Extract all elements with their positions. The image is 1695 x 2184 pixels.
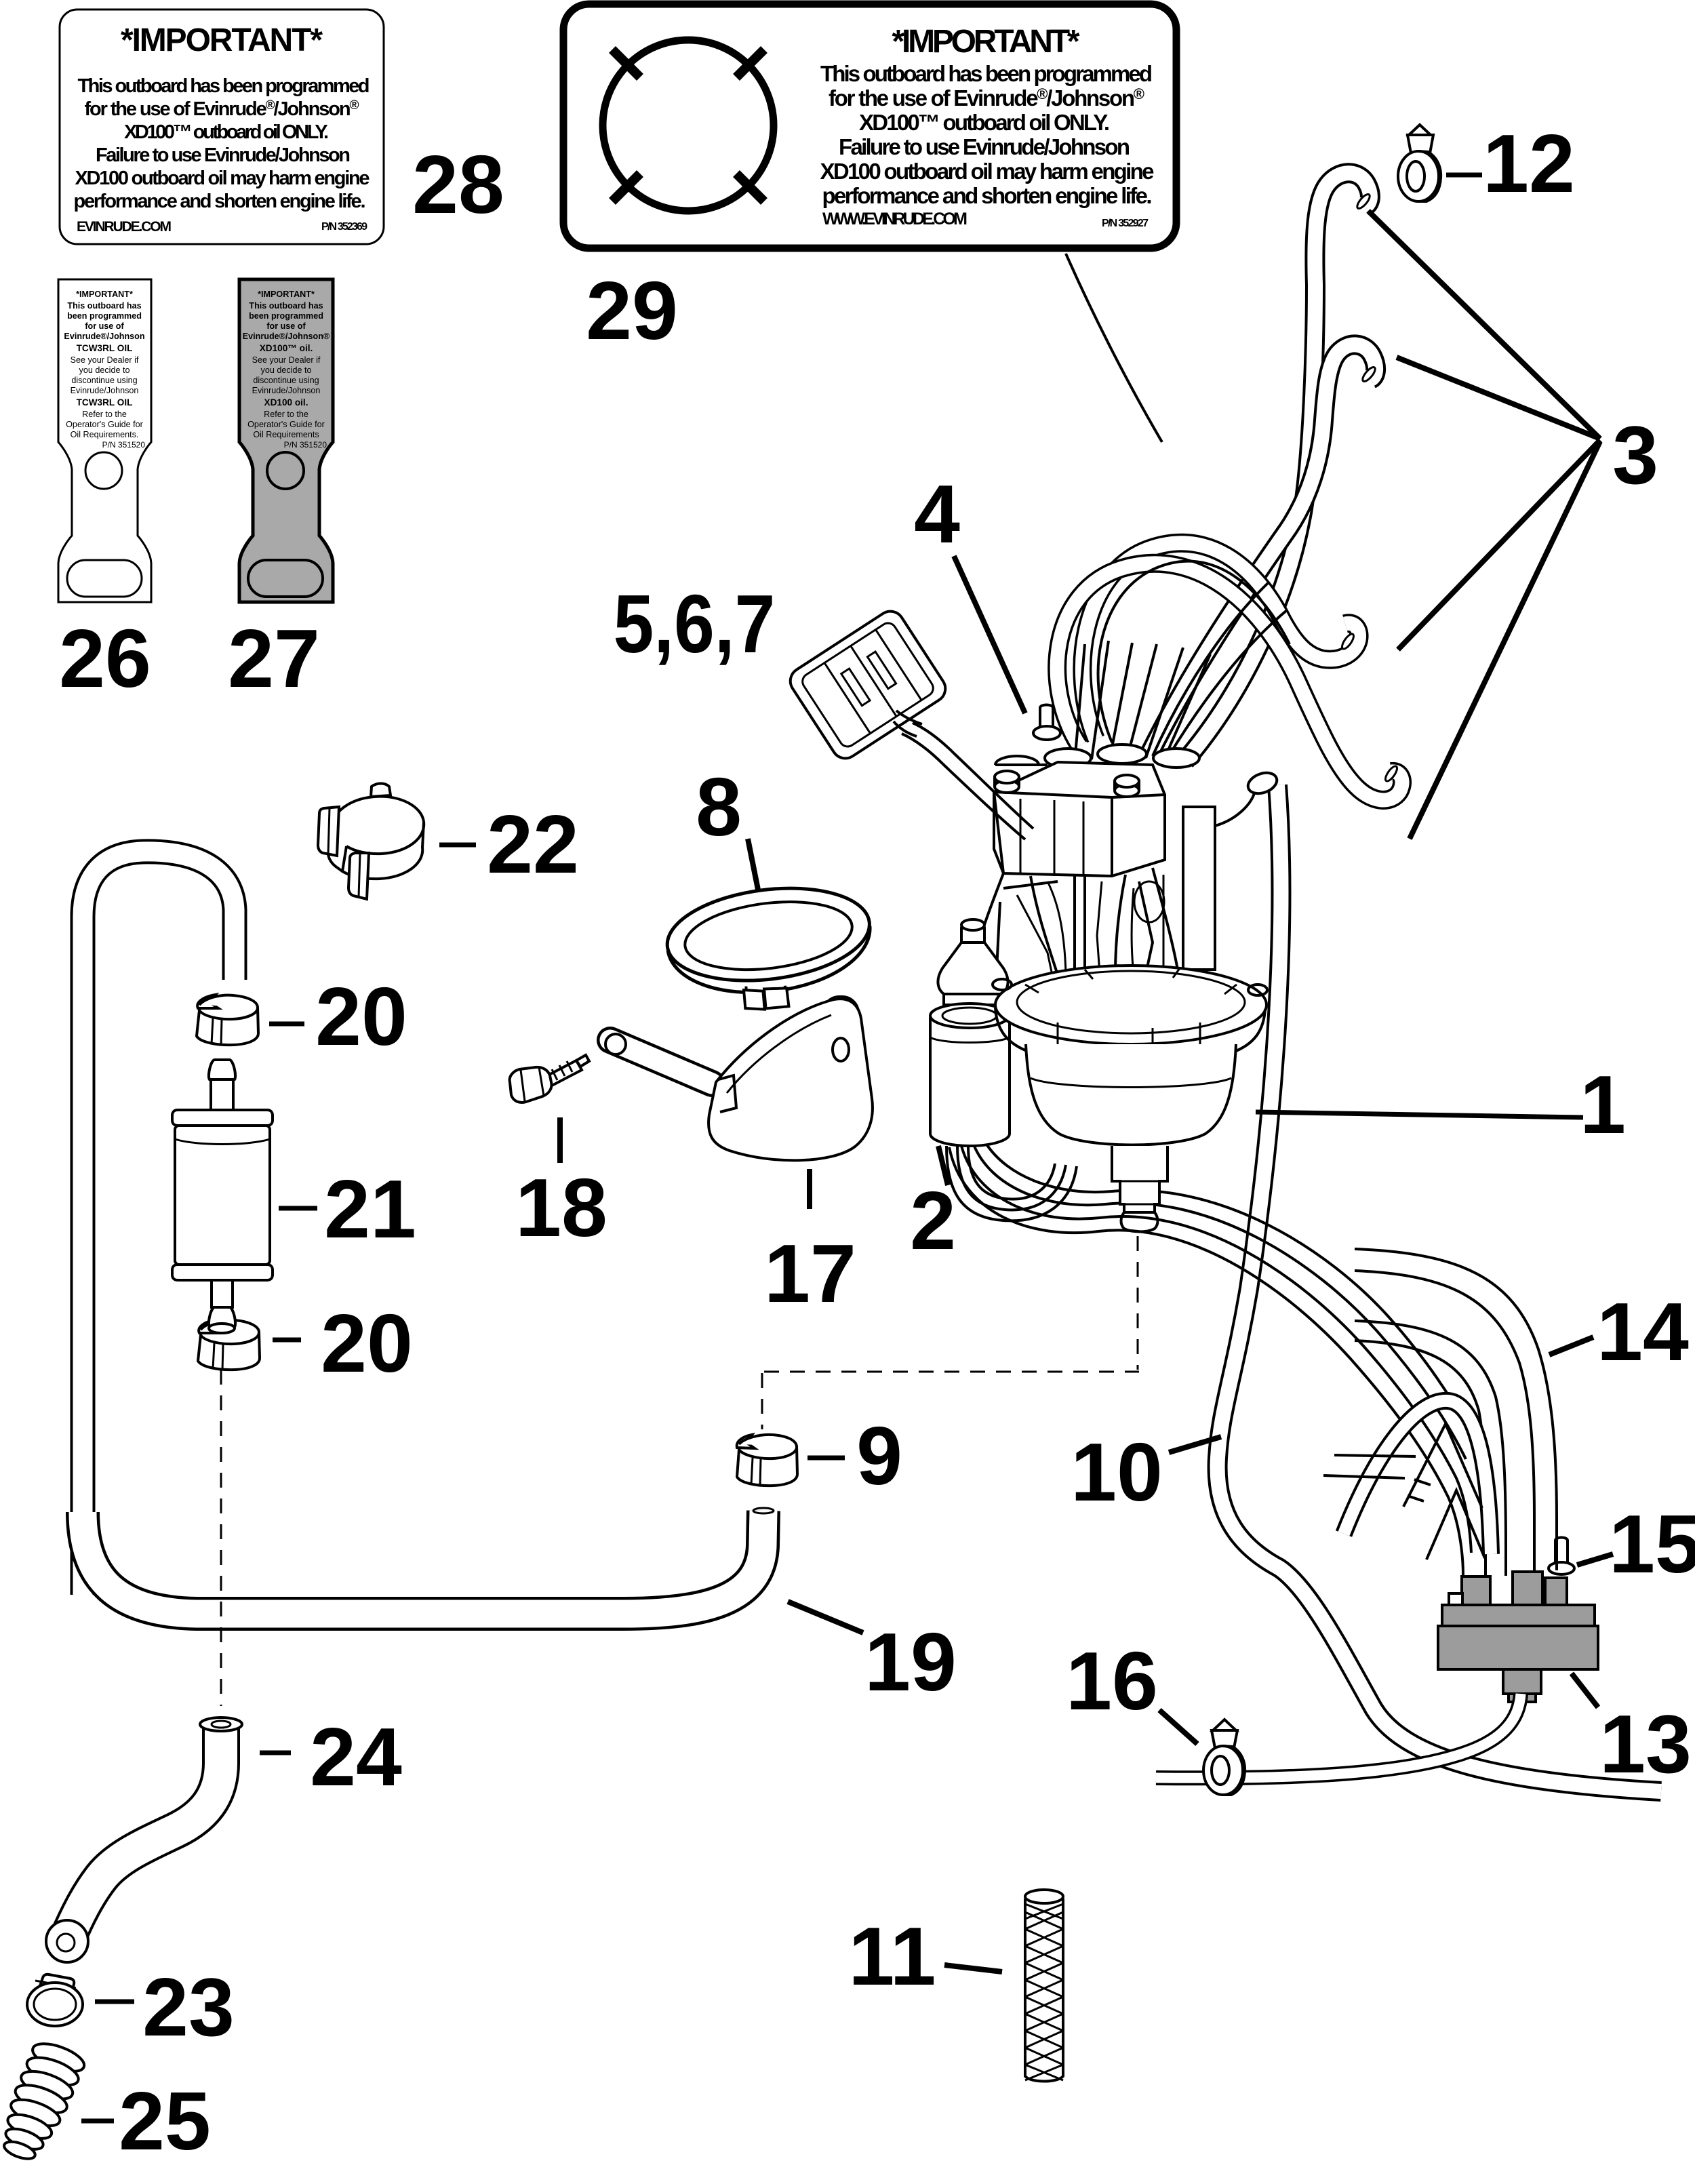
svg-text:P/N 352369: P/N 352369 [321, 221, 367, 233]
svg-text:20: 20 [315, 970, 407, 1063]
svg-text:you decide to: you decide to [79, 365, 130, 375]
svg-text:Refer to the: Refer to the [264, 410, 308, 419]
svg-text:Refer to the: Refer to the [82, 410, 127, 419]
svg-text:WWW.EVINRUDE.COM: WWW.EVINRUDE.COM [822, 210, 968, 229]
svg-text:29: 29 [586, 264, 678, 357]
svg-text:This outboard has: This outboard has [67, 301, 141, 311]
svg-text:5,6,7: 5,6,7 [614, 578, 776, 671]
svg-text:XD100™ oil.: XD100™ oil. [260, 343, 313, 353]
svg-text:14: 14 [1597, 1286, 1689, 1378]
svg-text:This outboard has been program: This outboard has been programmed [820, 61, 1153, 86]
svg-text:XD100 outboard oil may harm en: XD100 outboard oil may harm engine [820, 159, 1155, 184]
svg-text:26: 26 [59, 612, 151, 704]
svg-text:This outboard has been program: This outboard has been programmed [78, 75, 370, 97]
svg-text:24: 24 [310, 1711, 402, 1803]
svg-text:performance and shorten engine: performance and shorten engine life. [74, 191, 366, 212]
svg-text:*IMPORTANT*: *IMPORTANT* [258, 290, 315, 299]
svg-text:8: 8 [696, 761, 742, 853]
svg-text:been programmed: been programmed [67, 311, 142, 321]
svg-text:for use of: for use of [85, 321, 124, 331]
svg-text:Operator's Guide for: Operator's Guide for [247, 420, 325, 429]
svg-text:TCW3RL OIL: TCW3RL OIL [77, 397, 133, 408]
svg-text:18: 18 [515, 1162, 607, 1254]
svg-text:XD100™ outboard oil ONLY.: XD100™ outboard oil ONLY. [859, 110, 1110, 135]
svg-text:16: 16 [1066, 1635, 1158, 1727]
svg-text:28: 28 [412, 138, 504, 231]
svg-text:XD100™ outboard oil ONLY.: XD100™ outboard oil ONLY. [124, 121, 329, 143]
svg-text:XD100 outboard oil may harm en: XD100 outboard oil may harm engine [75, 167, 370, 189]
svg-text:Evinrude®/Johnson®: Evinrude®/Johnson® [243, 332, 330, 341]
svg-text:Evinrude/Johnson: Evinrude/Johnson [71, 386, 139, 395]
svg-text:This outboard has: This outboard has [249, 301, 323, 311]
svg-text:21: 21 [324, 1163, 416, 1255]
svg-text:P/N 351520: P/N 351520 [102, 440, 146, 450]
svg-text:for the use of Evinrude®/Johns: for the use of Evinrude®/Johnson® [85, 98, 359, 120]
svg-text:25: 25 [119, 2075, 211, 2167]
svg-text:12: 12 [1483, 117, 1575, 210]
svg-text:P/N 352927: P/N 352927 [1102, 218, 1149, 229]
svg-text:*IMPORTANT*: *IMPORTANT* [121, 22, 323, 58]
svg-text:27: 27 [228, 612, 320, 704]
svg-text:P/N 351520: P/N 351520 [284, 440, 327, 450]
svg-text:for use of: for use of [266, 321, 306, 331]
svg-text:been programmed: been programmed [249, 311, 323, 321]
svg-text:*IMPORTANT*: *IMPORTANT* [892, 24, 1080, 60]
svg-text:*IMPORTANT*: *IMPORTANT* [76, 290, 133, 299]
svg-text:Operator's Guide for: Operator's Guide for [66, 420, 143, 429]
svg-text:15: 15 [1609, 1498, 1695, 1590]
svg-text:22: 22 [487, 798, 579, 890]
svg-text:you decide to: you decide to [261, 365, 312, 375]
svg-text:See your Dealer if: See your Dealer if [71, 355, 139, 365]
svg-text:9: 9 [856, 1410, 902, 1502]
svg-text:performance and shorten engine: performance and shorten engine life. [822, 183, 1153, 208]
svg-text:4: 4 [914, 468, 960, 560]
svg-text:Evinrude/Johnson: Evinrude/Johnson [252, 386, 321, 395]
svg-text:Oil Requirements: Oil Requirements [253, 430, 319, 439]
svg-text:Failure to use Evinrude/Johnso: Failure to use Evinrude/Johnson [96, 144, 351, 166]
svg-text:XD100 oil.: XD100 oil. [264, 397, 308, 408]
svg-text:Failure to use Evinrude/Johnso: Failure to use Evinrude/Johnson [839, 134, 1130, 159]
svg-text:3: 3 [1612, 409, 1658, 501]
svg-text:2: 2 [910, 1174, 956, 1267]
svg-text:11: 11 [849, 1910, 936, 2002]
svg-text:EVINRUDE.COM: EVINRUDE.COM [77, 219, 172, 235]
svg-text:for the use of Evinrude®/Johns: for the use of Evinrude®/Johnson® [829, 85, 1144, 111]
svg-text:13: 13 [1599, 1698, 1692, 1790]
svg-text:1: 1 [1580, 1058, 1626, 1151]
svg-text:19: 19 [864, 1616, 957, 1708]
svg-text:discontinue using: discontinue using [71, 376, 137, 385]
svg-text:17: 17 [764, 1227, 856, 1319]
svg-text:23: 23 [142, 1961, 235, 2053]
svg-text:Evinrude®/Johnson: Evinrude®/Johnson [64, 332, 144, 341]
svg-text:TCW3RL OIL: TCW3RL OIL [77, 343, 133, 353]
svg-text:10: 10 [1071, 1426, 1163, 1518]
svg-text:discontinue using: discontinue using [253, 376, 319, 385]
svg-text:Oil Requirements.: Oil Requirements. [71, 430, 139, 439]
svg-text:20: 20 [321, 1297, 413, 1389]
svg-text:See your Dealer if: See your Dealer if [252, 355, 321, 365]
